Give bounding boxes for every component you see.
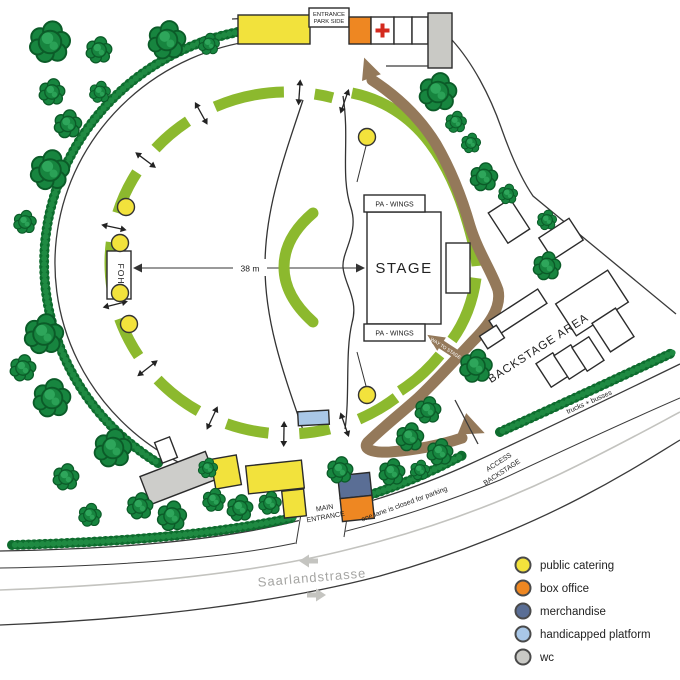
site-map-svg: 38 m WAY TO <box>0 0 680 680</box>
public-catering-marker <box>112 285 129 302</box>
catering-building-b <box>246 460 305 494</box>
legend-label-box-office: box office <box>540 583 589 595</box>
entrance-building-a <box>394 17 412 44</box>
public-catering-marker <box>118 199 135 216</box>
dimension-label: 38 m <box>241 264 260 274</box>
venue-site-plan: 38 m WAY TO <box>0 0 680 680</box>
legend-swatch-merchandise <box>516 604 531 619</box>
legend-swatch-handicapped-platform <box>516 627 531 642</box>
legend-swatch-box-office <box>516 581 531 596</box>
entrance-park-side-label-1: ENTRANCE <box>313 12 345 18</box>
foh-label: FOH <box>116 264 126 285</box>
entrance-park-side-label-2: PARK SIDE <box>314 19 345 25</box>
public-catering-marker <box>359 387 376 404</box>
handicapped-platform <box>298 410 330 426</box>
legend-label-merchandise: merchandise <box>540 606 606 618</box>
legend-row-box-office: box office <box>516 581 590 596</box>
stage-label: STAGE <box>375 260 432 277</box>
entrance-building-b <box>412 17 428 44</box>
legend-label-public-catering: public catering <box>540 560 614 572</box>
legend-swatch-public-catering <box>516 558 531 573</box>
legend-row-merchandise: merchandise <box>516 604 606 619</box>
public-catering-marker <box>359 129 376 146</box>
legend-label-wc: wc <box>539 652 554 664</box>
legend-swatch-wc <box>516 650 531 665</box>
box-office-north <box>349 17 371 44</box>
catering-building-c <box>282 489 307 518</box>
pa-wing-north-label: PA - WINGS <box>375 202 414 209</box>
public-catering-marker <box>112 235 129 252</box>
legend-label-handicapped-platform: handicapped platform <box>540 629 651 641</box>
catering-building-north <box>238 15 310 44</box>
wc-building-north <box>428 13 452 68</box>
stage-side-platform <box>446 243 470 293</box>
public-catering-marker <box>121 316 138 333</box>
pa-wing-south-label: PA - WINGS <box>375 331 414 338</box>
